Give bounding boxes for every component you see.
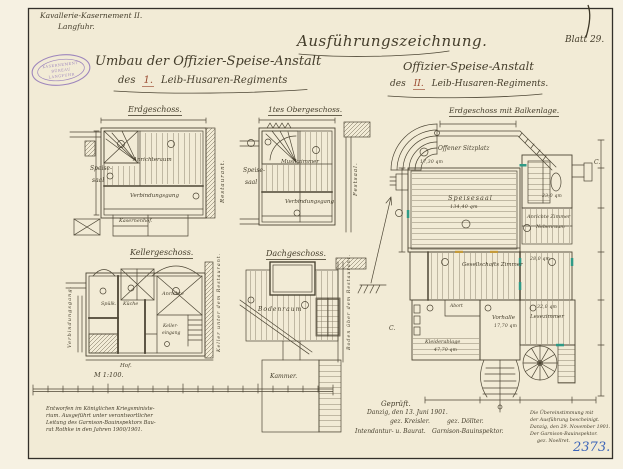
left-title-regiment-number: 1. [142, 76, 154, 87]
room-label-kleiderablage: Kleiderablage [425, 340, 460, 345]
sheet-title: Ausführungszeichnung. [297, 34, 487, 49]
footer-title-left: Intendantur- u. Baurat. [355, 429, 426, 435]
room-label-abort: Abort [450, 305, 463, 310]
footer-note-line1: Entworfen im Königlichen Kriegsministe- [46, 407, 154, 412]
footer-signature-right: gez. Döllter. [447, 419, 484, 425]
room-label-boden-ueber-restaurant: Boden über dem Restaurant. [348, 254, 353, 350]
archive-number: 2373. [573, 441, 610, 454]
certification-line2: der Ausführung bescheinigt. [530, 419, 599, 424]
left-title-line1: Umbau der Offizier-Speise-Anstalt [95, 55, 321, 68]
room-label-vorhalle: Vorhalle [492, 316, 515, 322]
obergeschoss-title: 1tes Obergeschoss. [268, 106, 342, 116]
right-title-prefix: des [390, 80, 406, 90]
room-label-lesezimmer: Lesezimmer [530, 315, 564, 321]
corner-note-line2: Langfuhr. [58, 23, 95, 31]
room-label-speisesaal-og-1: Speise- [243, 168, 265, 174]
area-label-kleiderablage: 47,70 qm [434, 349, 457, 354]
footer-ort-datum: Danzig, den 13. Juni 1901. [367, 410, 448, 416]
area-label-sitzplatz: 17,30 qm [420, 161, 443, 166]
area-label-vorhalle: 17,70 qm [494, 325, 517, 330]
section-mark-c-right: C. [594, 160, 600, 166]
room-label-bodenraum: Bodenraum [258, 307, 302, 313]
erdgeschoss-title: Erdgeschoss. [128, 106, 182, 116]
scale-label: M 1:100. [94, 372, 124, 379]
footer-note-line2: rium. Ausgeführt unter verantwortlicher [46, 414, 153, 419]
certification-line1: Die Übereinstimmung mit [530, 412, 593, 417]
footer-title-right: Garnison-Bauinspektor. [432, 429, 503, 435]
room-label-gesellschaftszimmer: Gesellschafts Zimmer [462, 263, 523, 269]
certification-line4: Der Garnison-Bauinspektor. [530, 433, 598, 438]
blatt-number: Blatt 29. [565, 36, 604, 45]
area-label-raum28: 28,0 qm [530, 258, 550, 263]
room-label-verbindungsgang-kg: Verbindungsgang. [68, 286, 73, 348]
room-label-kellereingang-2: eingang [162, 332, 180, 337]
hauptplan-title: Erdgeschoss mit Balkenlage. [449, 107, 559, 117]
right-title-line2: des II. Leib-Husaren-Regiments. [390, 80, 548, 90]
footer-signature-left: gez. Kreisler. [390, 419, 430, 425]
room-label-spuelkueche: Spülk. [101, 303, 116, 308]
room-label-speisesaal-haupt: Speisesaal [448, 195, 493, 202]
room-label-keller-unter-restaurant: Keller unter dem Restaurant. [218, 253, 223, 352]
footer-geprueft: Geprüft. [381, 401, 411, 408]
room-label-kasernenhof: Kasernenhof. [119, 219, 153, 224]
kellergeschoss-title: Kellergeschoss. [130, 249, 193, 259]
left-title-line2: des 1. Leib-Husaren-Regiments [118, 76, 287, 87]
room-label-verbindungsgang-og: Verbindungsgang. [285, 200, 336, 206]
room-label-speisesaal-1: Speise- [90, 166, 112, 172]
room-label-hof: Hof. [120, 364, 132, 370]
room-label-nebenraum: Nebenraum [536, 226, 565, 231]
room-label-anrichte-zimmer: Anrichte Zimmer [527, 215, 570, 220]
right-title-suffix: Leib-Husaren-Regiments. [432, 80, 549, 90]
area-label-lesezimmer: 32,0 qm [537, 306, 557, 311]
footer-note-line3: Leitung des Garnison-Bauinspektors Bau- [46, 421, 156, 426]
corner-note-line1: Kavallerie-Kasernement II. [40, 12, 142, 20]
area-label-speisesaal: 134,40 qm [450, 206, 478, 211]
left-title-prefix: des [118, 76, 135, 87]
dachgeschoss-title: Dachgeschoss. [266, 250, 326, 260]
room-label-speisesaal-og-2: saal [245, 180, 257, 186]
room-label-kueche: Küche [123, 303, 138, 308]
room-label-verbindungsgang-eg: Verbindungsgang [130, 194, 179, 200]
drawing-sheet: KASERNEMENT BÜREAU LANGFUHR Kavallerie-K… [0, 0, 623, 469]
room-label-speisesaal-2: saal [92, 178, 104, 184]
room-label-restaurant: Restaurant. [221, 159, 227, 203]
room-label-anrichteraum: Anrichteraum [133, 158, 172, 164]
section-mark-c-left: C. [389, 326, 395, 332]
room-label-anrichte: Anrichte [162, 292, 184, 297]
room-label-offener-sitzplatz: Offener Sitzplatz [438, 146, 489, 152]
right-title-line1: Offizier-Speise-Anstalt [403, 61, 534, 73]
certification-line3: Danzig, den 29. November 1901. [530, 426, 610, 431]
room-label-musikzimmer: Musikzimmer [281, 160, 319, 166]
right-title-regiment-number: II. [413, 80, 425, 90]
left-title-suffix: Leib-Husaren-Regiments [161, 76, 287, 87]
certification-signature: gez. Noellret. [537, 440, 570, 445]
room-label-festsaal: Festsaal. [354, 162, 360, 196]
area-label-raum23: 23,0 qm [542, 195, 562, 200]
room-label-kellereingang-1: Keller- [163, 325, 178, 330]
footer-note-line4: rat Rothke in den Jahren 1900/1901. [46, 428, 143, 433]
room-label-kammer: Kammer. [270, 374, 297, 380]
